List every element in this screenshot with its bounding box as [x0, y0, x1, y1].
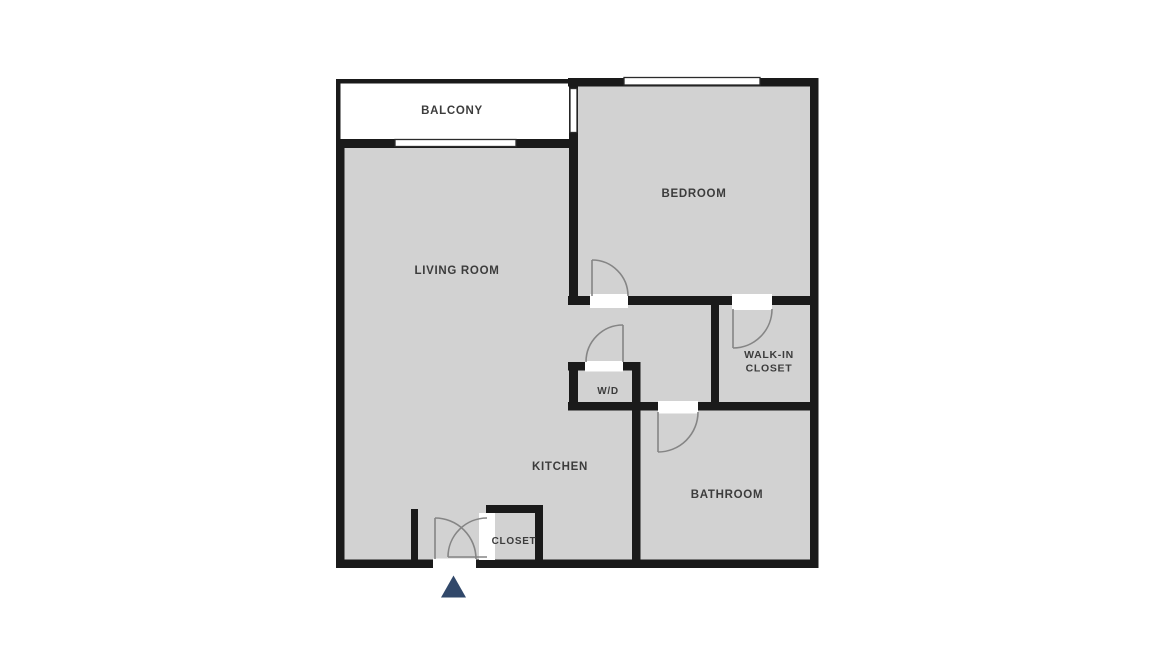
room-label-kitchen: KITCHEN	[532, 461, 588, 473]
wall-outer-bottom	[336, 560, 818, 569]
room-label-walkin-line2: CLOSET	[746, 363, 793, 375]
room-label-bathroom: BATHROOM	[691, 489, 763, 501]
bedroom-window	[624, 78, 760, 86]
bedroom-door-opening	[590, 294, 628, 308]
wall-closet-top	[486, 505, 543, 513]
wall-balcony-left	[336, 79, 341, 143]
floorplan-svg: BALCONY BEDROOM LIVING ROOM WALK-IN CLOS…	[0, 0, 1152, 648]
wall-outer-left	[336, 139, 345, 568]
room-label-closet: CLOSET	[492, 536, 537, 547]
entry-door-opening	[433, 559, 476, 570]
wall-balcony-top	[336, 79, 578, 84]
walkin-closet-door-opening	[732, 294, 772, 310]
entry-marker-icon	[441, 576, 466, 598]
room-label-walkin-line1: WALK-IN	[744, 349, 794, 361]
floorplan-canvas: BALCONY BEDROOM LIVING ROOM WALK-IN CLOS…	[0, 0, 1152, 648]
room-label-bedroom: BEDROOM	[662, 188, 727, 200]
room-label-wd: W/D	[597, 386, 619, 397]
room-label-balcony: BALCONY	[421, 105, 483, 117]
wall-outer-right	[810, 78, 819, 568]
wd-door-opening	[585, 361, 623, 372]
room-label-living-room: LIVING ROOM	[414, 265, 499, 277]
wall-kitchen-stub	[411, 509, 418, 560]
bathroom-door-opening	[658, 401, 698, 414]
balcony-side-window	[570, 89, 577, 133]
living-room-window	[395, 140, 516, 147]
wall-walkin-left	[711, 296, 719, 410]
wall-kitchen-bathroom-divider	[632, 362, 641, 568]
